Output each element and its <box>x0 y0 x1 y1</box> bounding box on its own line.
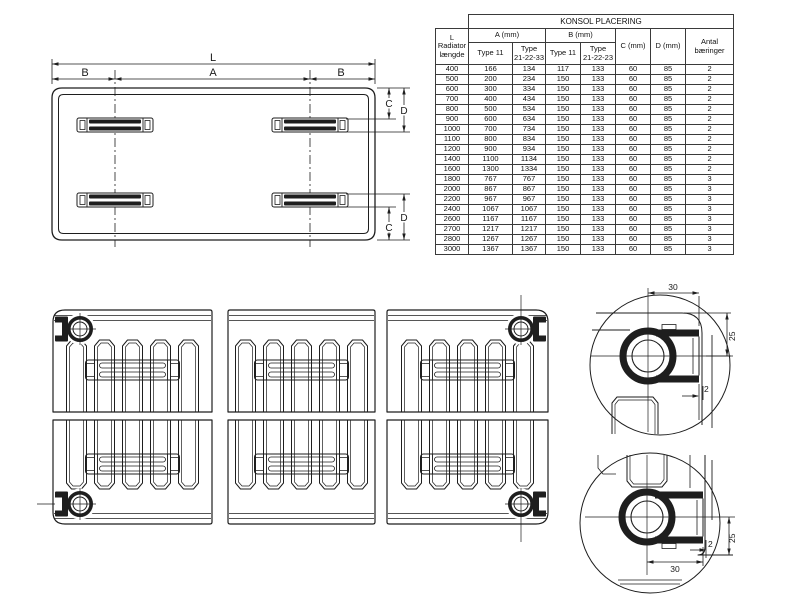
table-row: 26001167116715013360853 <box>436 215 734 225</box>
col-header-antal: Antal bæringer <box>686 29 734 65</box>
table-row: 24001067106715013360853 <box>436 205 734 215</box>
radiator-plan-view <box>52 59 410 247</box>
table-row: 27001217121715013360853 <box>436 225 734 235</box>
empty-corner-cell <box>436 15 469 29</box>
sub-header-b-type11: Type 11 <box>546 43 581 65</box>
radiator-front-sections <box>37 295 548 542</box>
table-title: KONSOL PLACERING <box>469 15 734 29</box>
detail-bottom-dim-25: 25 <box>727 533 737 543</box>
col-header-c: C (mm) <box>616 29 651 65</box>
detail-bottom-dim-2: 2 <box>708 539 713 549</box>
table-row: 16001300133415013360852 <box>436 165 734 175</box>
table-row: 220096796715013360853 <box>436 195 734 205</box>
table-row: 90060063415013360852 <box>436 115 734 125</box>
table-title-row: KONSOL PLACERING <box>436 15 734 29</box>
sub-header-b-type21: Type 21-22-23 <box>581 43 616 65</box>
dim-label-c-top: C <box>385 99 392 110</box>
sub-header-a-type21: Type 21-22-33 <box>513 43 546 65</box>
table-row: 28001267126715013360853 <box>436 235 734 245</box>
detail-bottom-dim-30: 30 <box>670 564 680 574</box>
dim-label-b-left: B <box>81 67 88 79</box>
konsol-placering-table: KONSOL PLACERING L Radiator længde A (mm… <box>435 14 734 255</box>
table-row: 50020023415013360852 <box>436 75 734 85</box>
sub-header-a-type11: Type 11 <box>469 43 513 65</box>
table-row: 180076776715013360853 <box>436 175 734 185</box>
dim-label-d-top: D <box>400 106 407 117</box>
table-row: 30001367136715013360853 <box>436 245 734 255</box>
dim-label-a: A <box>209 67 217 79</box>
table-row: 110080083415013360852 <box>436 135 734 145</box>
table-row: 120090093415013360852 <box>436 145 734 155</box>
table-group-header-row: L Radiator længde A (mm) B (mm) C (mm) D… <box>436 29 734 43</box>
radiator-datasheet-page: L B A B C D C D 30 25 2 30 25 2 KO <box>0 0 800 597</box>
table-row: 100070073415013360852 <box>436 125 734 135</box>
dim-label-c-bottom: C <box>385 223 392 234</box>
dim-label-d-bottom: D <box>400 213 407 224</box>
table-row: 40016613411713360852 <box>436 65 734 75</box>
detail-top-dim-2: 2 <box>704 384 709 394</box>
bracket-detail-view-top <box>590 288 733 435</box>
detail-top-dim-30: 30 <box>668 282 678 292</box>
table-row: 70040043415013360852 <box>436 95 734 105</box>
col-header-a: A (mm) <box>469 29 546 43</box>
table-row: 60030033415013360852 <box>436 85 734 95</box>
dim-label-b-right: B <box>337 67 344 79</box>
col-header-d: D (mm) <box>651 29 686 65</box>
col-header-b: B (mm) <box>546 29 616 43</box>
bracket-detail-view-bottom <box>580 453 735 593</box>
detail-top-dim-25: 25 <box>727 331 737 341</box>
placement-table: KONSOL PLACERING L Radiator længde A (mm… <box>435 14 734 255</box>
table-row: 80050053415013360852 <box>436 105 734 115</box>
col-header-length: L Radiator længde <box>436 29 469 65</box>
dim-label-l: L <box>210 52 216 64</box>
table-row: 14001100113415013360852 <box>436 155 734 165</box>
table-row: 200086786715013360853 <box>436 185 734 195</box>
